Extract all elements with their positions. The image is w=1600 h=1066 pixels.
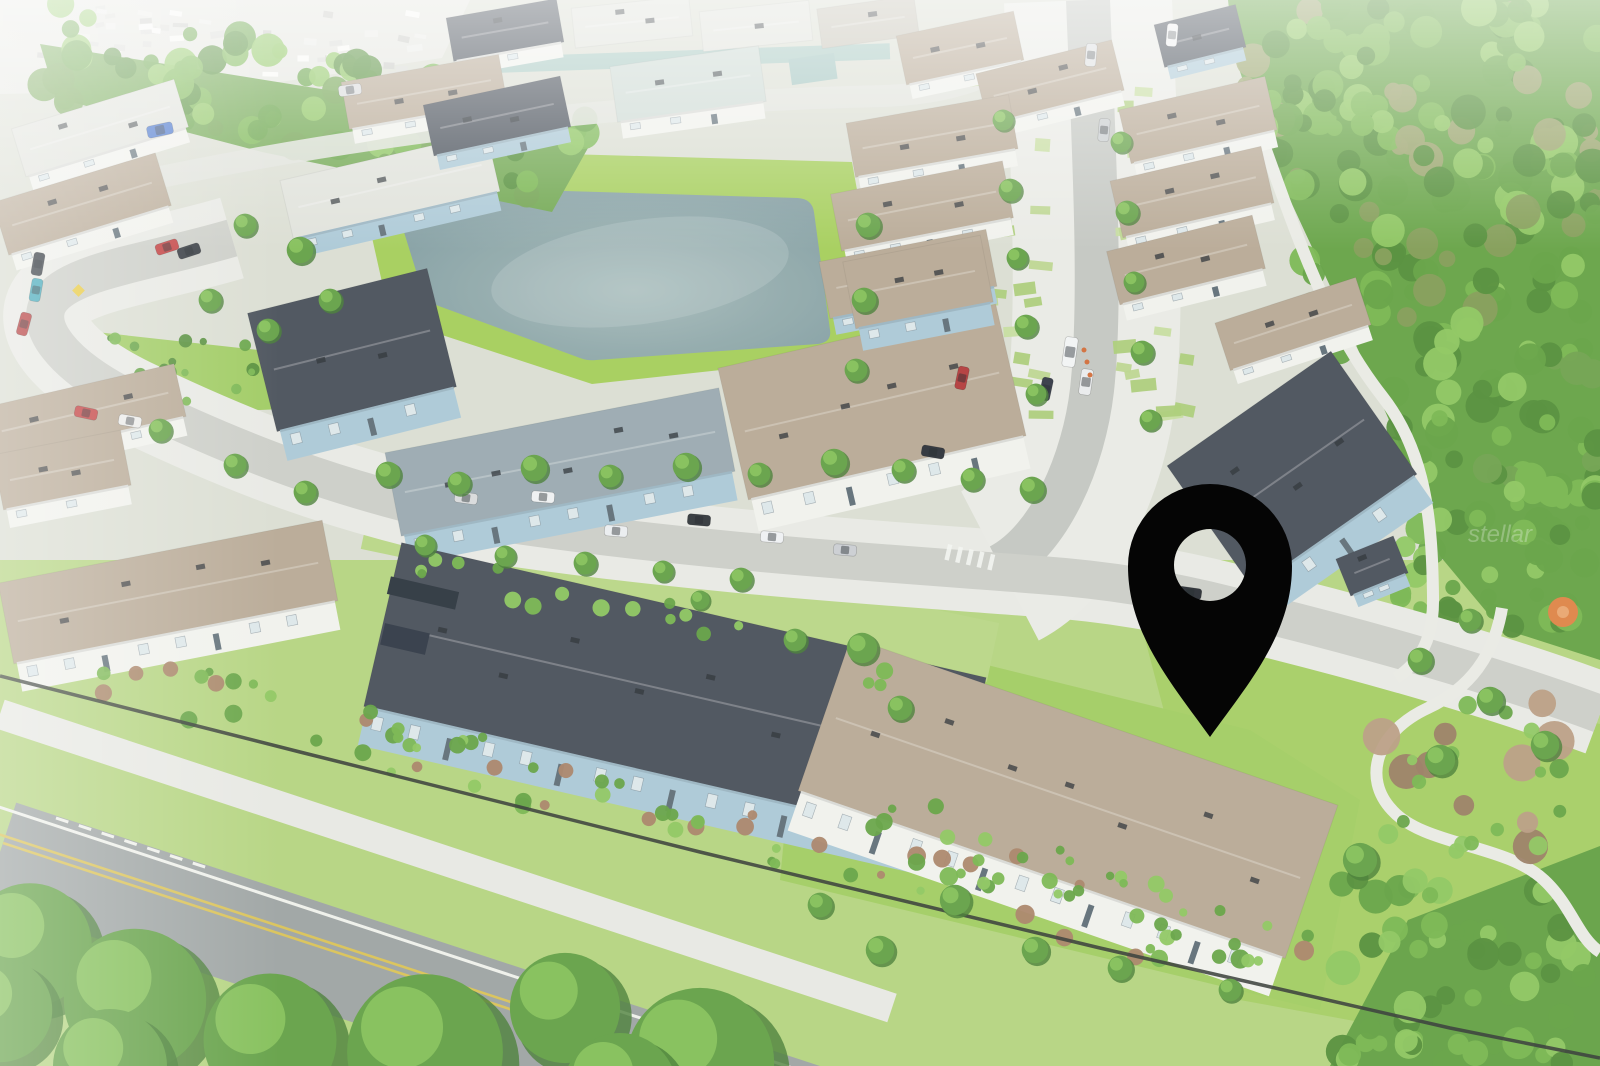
scene-svg: stellar [0,0,1600,1066]
scene-layers: stellar [0,0,1600,1066]
haze-left [0,0,280,1066]
aerial-photo-view: stellar [0,0,1600,1066]
